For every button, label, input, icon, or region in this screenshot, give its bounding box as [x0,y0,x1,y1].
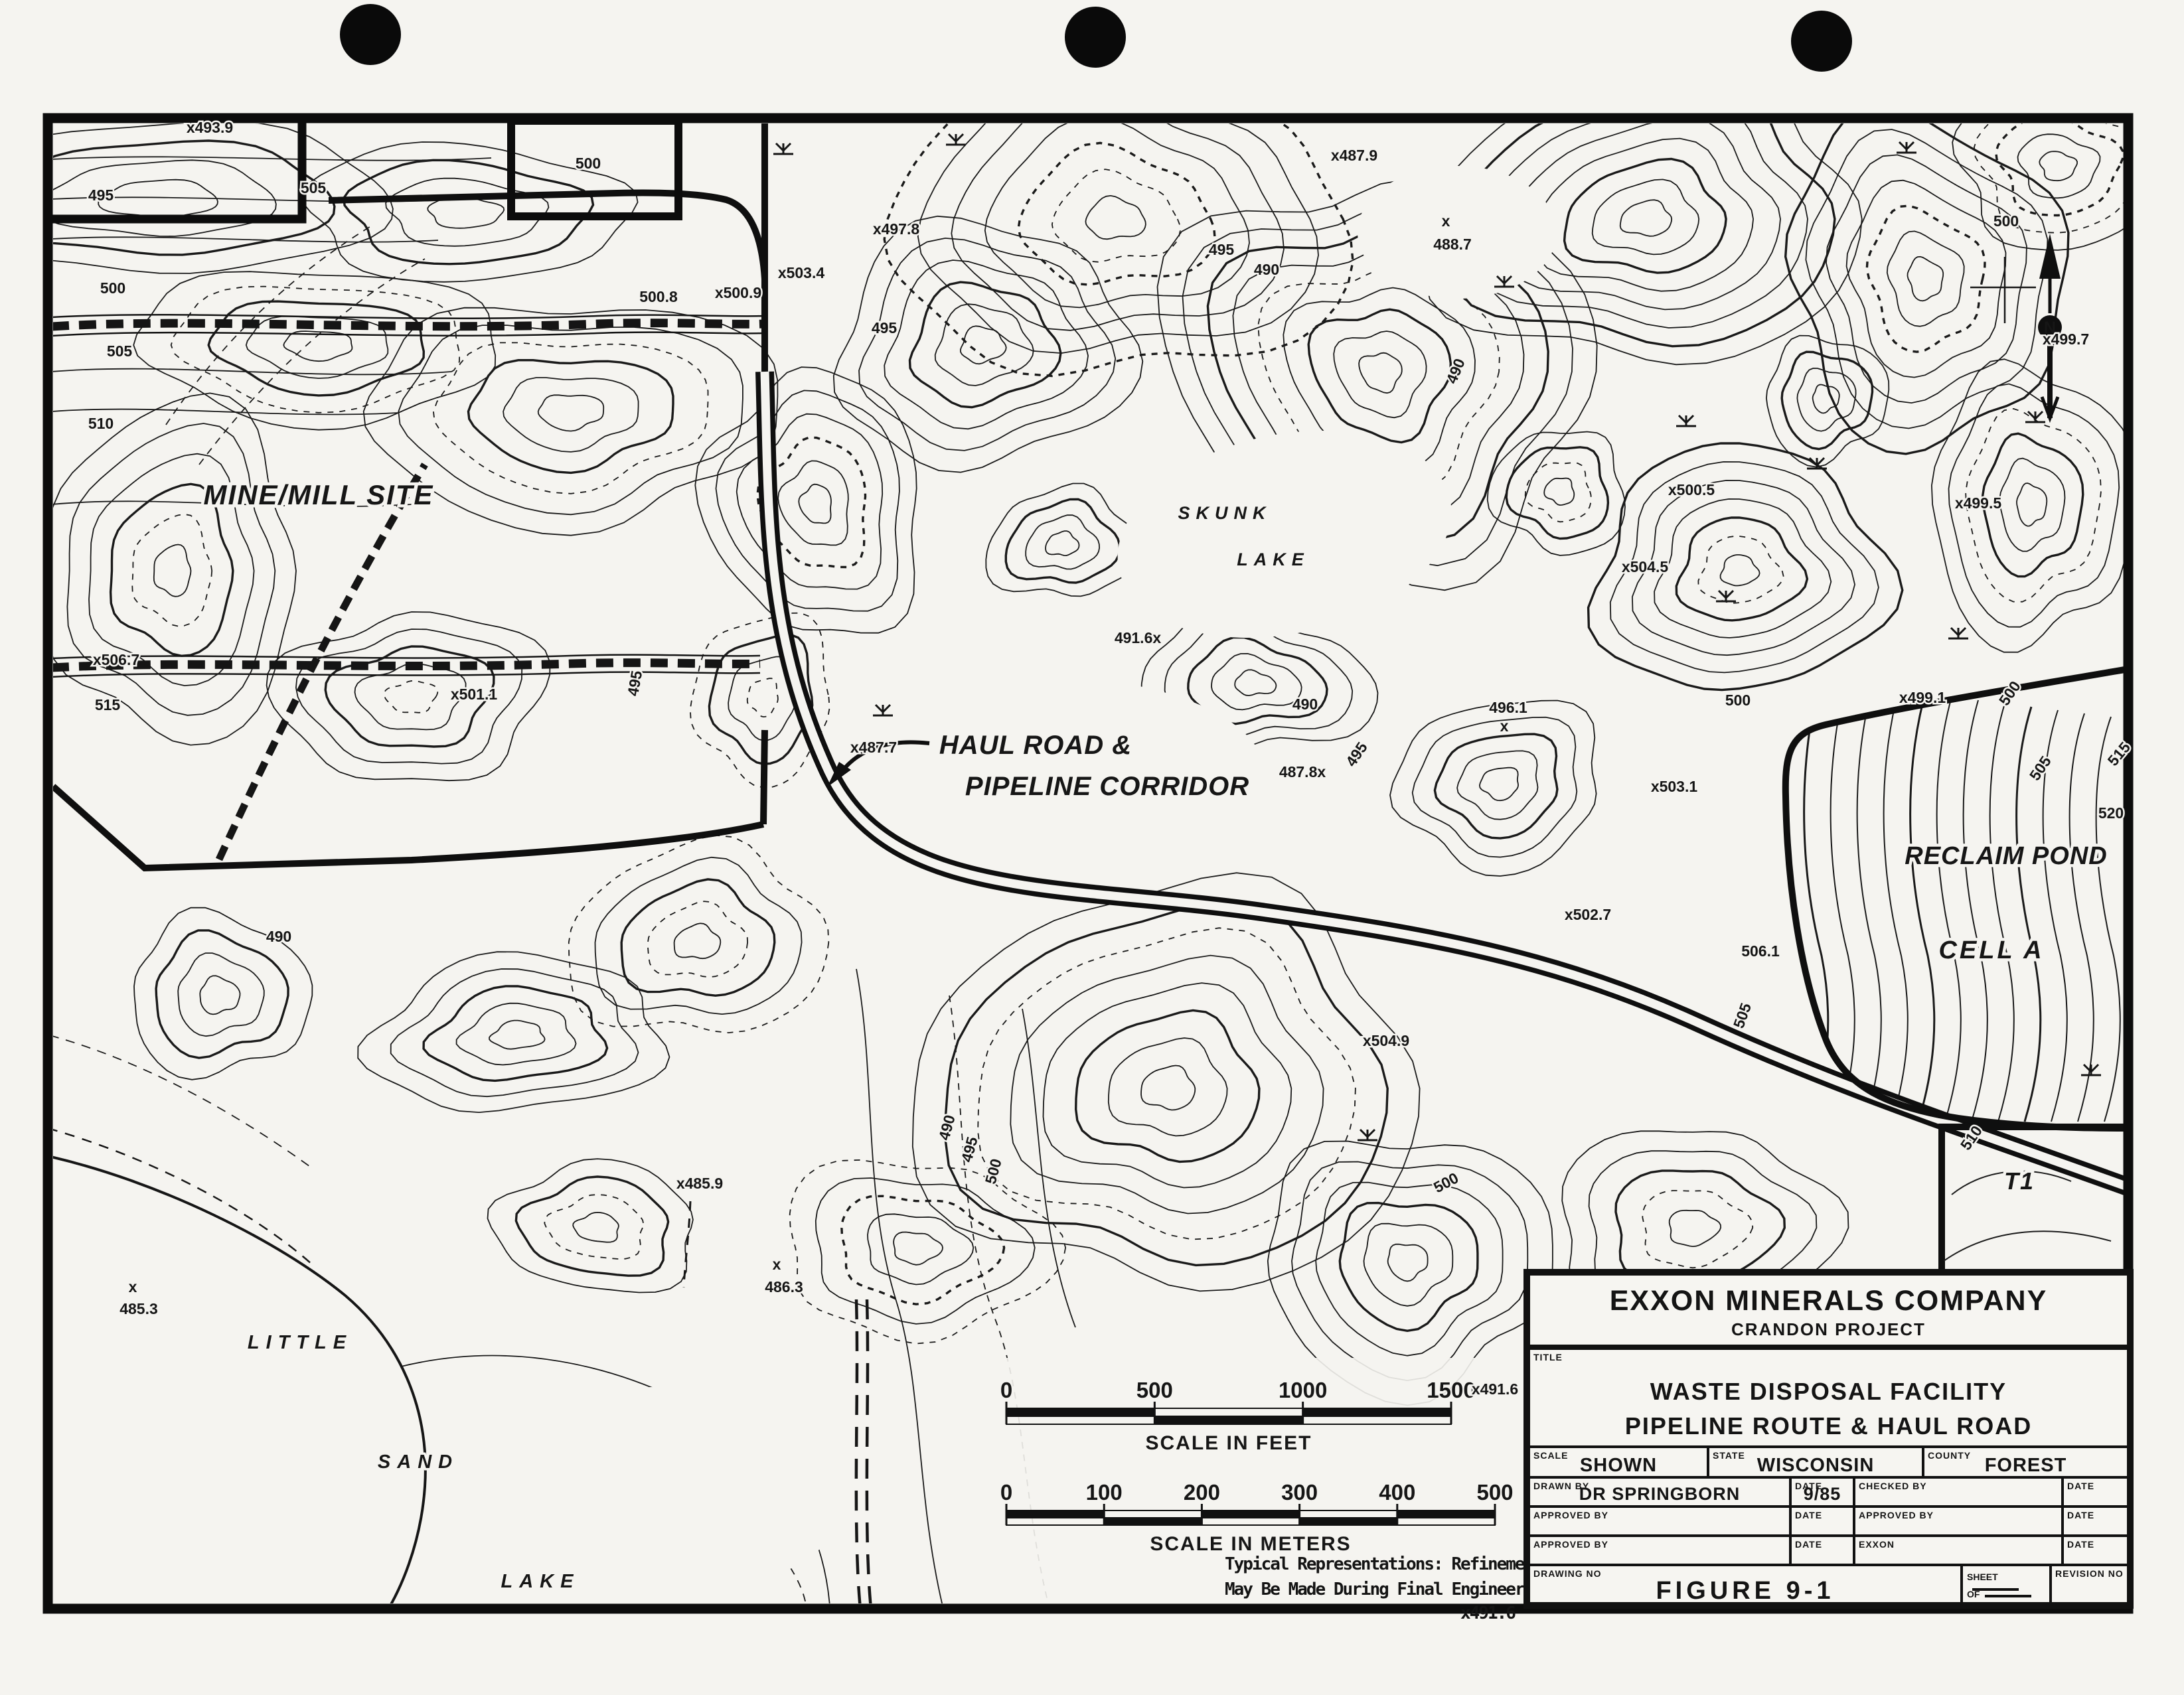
marsh-tuft-icon [1716,591,1736,601]
scale-value: SHOWN [1530,1455,1707,1477]
spot-elevation: 495 [1209,241,1235,258]
date-caption: DATE [2067,1510,2094,1520]
spot-elevation: x493.9 [187,119,233,136]
site-label: LAKE [501,1571,580,1592]
sheet-caption: SHEET [1967,1572,1998,1582]
scale-tick-label: 400 [1379,1480,1415,1505]
spot-elevation: 495 [624,669,645,698]
scale-tick-label: 0 [1000,1480,1012,1505]
punch-hole [1065,7,1126,68]
spot-elevation: 500 [1993,212,2019,230]
spot-elevation: 490 [1254,261,1279,278]
scale-state-county-row: SCALE SHOWN STATE WISCONSIN COUNTY FORES… [1530,1445,2127,1476]
spot-elevation: x487.9 [1331,147,1377,164]
spot-elevation: 491.6x [1115,629,1162,646]
scale-tick-label: 1000 [1279,1378,1327,1402]
scanned-map-page: N 050010001500SCALE IN FEET0100200300400… [0,0,2184,1695]
spot-elevation: 500 [1995,678,2024,708]
spot-elevation: 500 [1431,1169,1461,1196]
site-label: PIPELINE CORRIDOR [965,772,1249,801]
spot-elevation: 505 [2026,753,2055,784]
drawn-by-value: DR SPRINGBORN [1530,1484,1789,1505]
scale-tick-label: 100 [1086,1480,1123,1505]
scale-bar-title: SCALE IN FEET [1145,1432,1312,1454]
spot-elevation: 520 [2098,804,2124,822]
site-label: SKUNK [1178,503,1271,523]
spot-elevation: 495 [958,1135,981,1164]
spot-elevation: 487.8x [1279,763,1326,780]
spot-elevation: 500 [576,155,601,172]
scale-tick-label: 300 [1281,1480,1318,1505]
spot-elevation: 506.1 [1741,942,1780,960]
spot-elevation: x503.4 [778,264,825,281]
spot-elevation: x506.7 [93,651,139,668]
spot-elevation: x499.7 [2043,331,2089,348]
revision-cell: REVISION NO [2049,1566,2127,1602]
spot-elevation: 505 [107,342,133,360]
punch-hole [1791,11,1852,72]
spot-elevation: 515 [95,696,121,713]
spot-elevation: x500.5 [1668,481,1715,498]
approved-by-caption: APPROVED BY [1533,1510,1608,1520]
trail [856,1299,871,1609]
spot-elevation: x499.5 [1955,494,2002,512]
site-label: LAKE [1237,550,1310,569]
date-caption: DATE [1795,1510,1822,1520]
spot-elevation: 490 [266,928,291,945]
title-block-company-row: EXXON MINERALS COMPANY CRANDON PROJECT [1530,1276,2127,1345]
exxon-date-cell: DATE [2061,1537,2127,1564]
spot-elevation: x503.1 [1651,778,1698,795]
spot-elevation: x502.7 [1565,906,1611,923]
date-caption: DATE [2067,1539,2094,1550]
marsh-tuft-icon [1807,458,1827,469]
checked-by-caption: CHECKED BY [1859,1481,1927,1491]
drawing-no-row: DRAWING NO FIGURE 9-1 SHEET OF REVISION … [1530,1564,2127,1602]
approved-date-cell: DATE [1789,1508,1853,1534]
spot-elevation: x504.9 [1363,1032,1409,1049]
county-value: FOREST [1924,1455,2127,1477]
spot-elevation: x487.7 [850,739,897,756]
of-caption: OF [1967,1589,1980,1599]
note-line-2: May Be Made During Final Engineering [1225,1580,1551,1599]
spot-elevation: 485.3 [119,1300,158,1317]
state-value: WISCONSIN [1709,1455,1922,1477]
date-caption: DATE [1795,1539,1822,1550]
spot-elevation: 495 [88,186,114,204]
spot-elevation: 495 [872,319,897,336]
exxon-cell: EXXON [1853,1537,2061,1564]
drawing-title-line2: PIPELINE ROUTE & HAUL ROAD [1530,1412,2127,1440]
title-block: EXXON MINERALS COMPANY CRANDON PROJECT T… [1523,1269,2134,1609]
approved-by-cell-2: APPROVED BY [1853,1508,2061,1534]
sheet-cell: SHEET OF [1960,1566,2049,1602]
spot-elevation: 500 [982,1157,1005,1186]
border-notch [48,119,302,219]
project-name: CRANDON PROJECT [1530,1319,2127,1340]
title-block-title-row: TITLE WASTE DISPOSAL FACILITY PIPELINE R… [1530,1345,2127,1445]
spot-elevation: 490 [1292,696,1318,713]
note-line-1: Typical Representations: Refinements [1225,1554,1551,1574]
spot-elevation: x500.9 [715,284,761,301]
scale-tick-label: 200 [1184,1480,1220,1505]
site-label: SAND [378,1451,459,1473]
marsh-tuft-icon [1358,1130,1377,1140]
scale-cell: SCALE SHOWN [1530,1448,1707,1476]
approved-by-caption: APPROVED BY [1533,1539,1608,1550]
spot-elevation: x [773,1256,781,1273]
state-cell: STATE WISCONSIN [1707,1448,1922,1476]
checked-by-cell: CHECKED BY [1853,1479,2061,1505]
spot-elevation: 496.1 [1489,699,1527,716]
marsh-tuft-icon [946,134,966,145]
spot-elevation: 490 [935,1113,959,1142]
marsh-tuft-icon [1948,628,1968,638]
drawing-title-line1: WASTE DISPOSAL FACILITY [1530,1378,2127,1406]
approved-by-cell-3: APPROVED BY [1530,1537,1789,1564]
spot-elevation: 505 [301,179,327,196]
drawn-date-cell: DATE 9/85 [1789,1479,1853,1505]
approved-row-1: APPROVED BY DATE APPROVED BY DATE [1530,1505,2127,1534]
note-spot-elevation: x491.6 [1460,1603,1515,1623]
drawn-date-value: 9/85 [1792,1484,1853,1505]
site-label: HAUL ROAD & [939,731,1132,760]
marsh-tuft-icon [1897,142,1916,153]
company-name: EXXON MINERALS COMPANY [1530,1285,2127,1317]
approved-date-cell-2: DATE [2061,1508,2127,1534]
marsh-tuft-icon [773,143,793,154]
drawn-by-cell: DRAWN BY DR SPRINGBORN [1530,1479,1789,1505]
drawing-no-cell: DRAWING NO FIGURE 9-1 [1530,1566,1960,1602]
site-label: LITTLE [248,1332,352,1353]
revision-caption: REVISION NO [2055,1568,2124,1579]
exxon-caption: EXXON [1859,1539,1895,1550]
site-label: MINE/MILL SITE [204,479,434,510]
scale-bar-title: SCALE IN METERS [1150,1533,1351,1555]
spot-elevation: x [129,1278,137,1295]
little-sand-lake [48,1156,426,1609]
spot-elevation: x497.8 [873,220,920,238]
spot-elevation: 486.3 [765,1278,803,1295]
approved-by-caption: APPROVED BY [1859,1510,1934,1520]
spot-elevation: x [1442,212,1450,230]
site-label: CELL A [1938,936,2044,964]
spot-elevation: 510 [88,415,114,432]
reclaim-pond-contours [1778,677,2120,1122]
spot-elevation: x [1500,717,1509,735]
marsh-tuft-icon [1676,415,1696,426]
approved-row-2: APPROVED BY DATE EXXON DATE [1530,1534,2127,1564]
marsh-tuft-icon [2025,411,2045,422]
spot-elevation: x491.6 [1472,1380,1518,1398]
county-cell: COUNTY FOREST [1922,1448,2127,1476]
date-caption: DATE [2067,1481,2094,1491]
scale-tick-label: 0 [1000,1378,1012,1402]
spot-elevation: x499.1 [1899,689,1946,706]
punch-hole [340,4,401,65]
scale-tick-label: 500 [1136,1378,1173,1402]
marsh-tuft-icon [2081,1065,2101,1075]
checked-date-cell: DATE [2061,1479,2127,1505]
drawn-by-row: DRAWN BY DR SPRINGBORN DATE 9/85 CHECKED… [1530,1476,2127,1505]
approved-by-cell: APPROVED BY [1530,1508,1789,1534]
figure-number: FIGURE 9-1 [1530,1577,1960,1605]
scale-tick-label: 500 [1476,1480,1513,1505]
spot-elevation: x485.9 [676,1175,723,1192]
spot-elevation: 495 [1342,739,1371,770]
spot-elevation: x501.1 [451,686,498,703]
spot-elevation: 500 [100,279,125,297]
spot-elevation: 490 [1443,356,1468,386]
spot-elevation: x504.5 [1622,558,1669,575]
approved-date-cell-3: DATE [1789,1537,1853,1564]
title-caption: TITLE [1533,1352,1563,1363]
site-label: T1 [2004,1167,2035,1195]
spot-elevation: 500.8 [639,288,678,305]
spot-elevation: 488.7 [1433,236,1472,253]
site-label: RECLAIM POND [1905,842,2107,870]
spot-elevation: 500 [1725,692,1751,709]
spot-elevation: 505 [1730,1001,1755,1031]
scale-tick-label: 1500 [1427,1378,1475,1402]
